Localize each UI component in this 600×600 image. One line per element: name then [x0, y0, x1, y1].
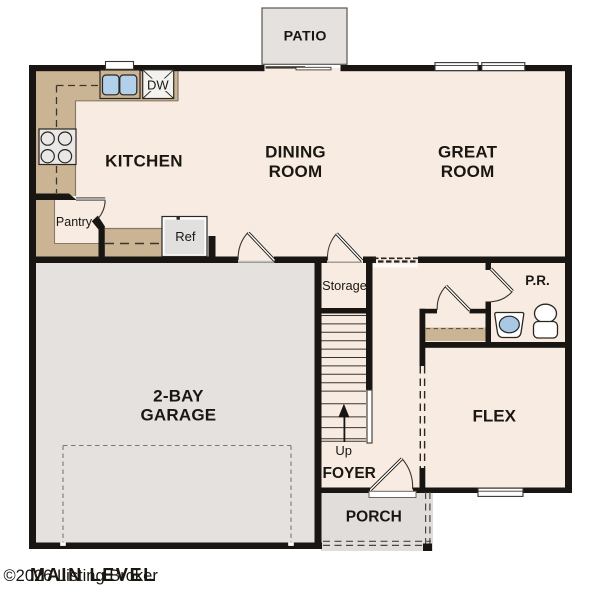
svg-text:FLEX: FLEX	[472, 407, 516, 426]
svg-text:ROOM: ROOM	[269, 162, 323, 181]
svg-text:GARAGE: GARAGE	[140, 406, 216, 425]
svg-text:DINING: DINING	[265, 143, 326, 162]
svg-text:Up: Up	[335, 443, 352, 458]
svg-text:P.R.: P.R.	[525, 273, 550, 288]
svg-text:Storage: Storage	[322, 278, 367, 293]
svg-text:GREAT: GREAT	[438, 143, 498, 162]
svg-text:Ref: Ref	[175, 229, 196, 244]
svg-text:DW: DW	[147, 78, 169, 93]
svg-text:Pantry: Pantry	[56, 215, 93, 229]
svg-text:PORCH: PORCH	[346, 509, 402, 526]
svg-text:FOYER: FOYER	[322, 465, 375, 482]
svg-text:KITCHEN: KITCHEN	[105, 152, 183, 171]
svg-text:ROOM: ROOM	[441, 162, 495, 181]
svg-text:2-BAY: 2-BAY	[153, 386, 204, 405]
svg-text:PATIO: PATIO	[284, 29, 327, 45]
